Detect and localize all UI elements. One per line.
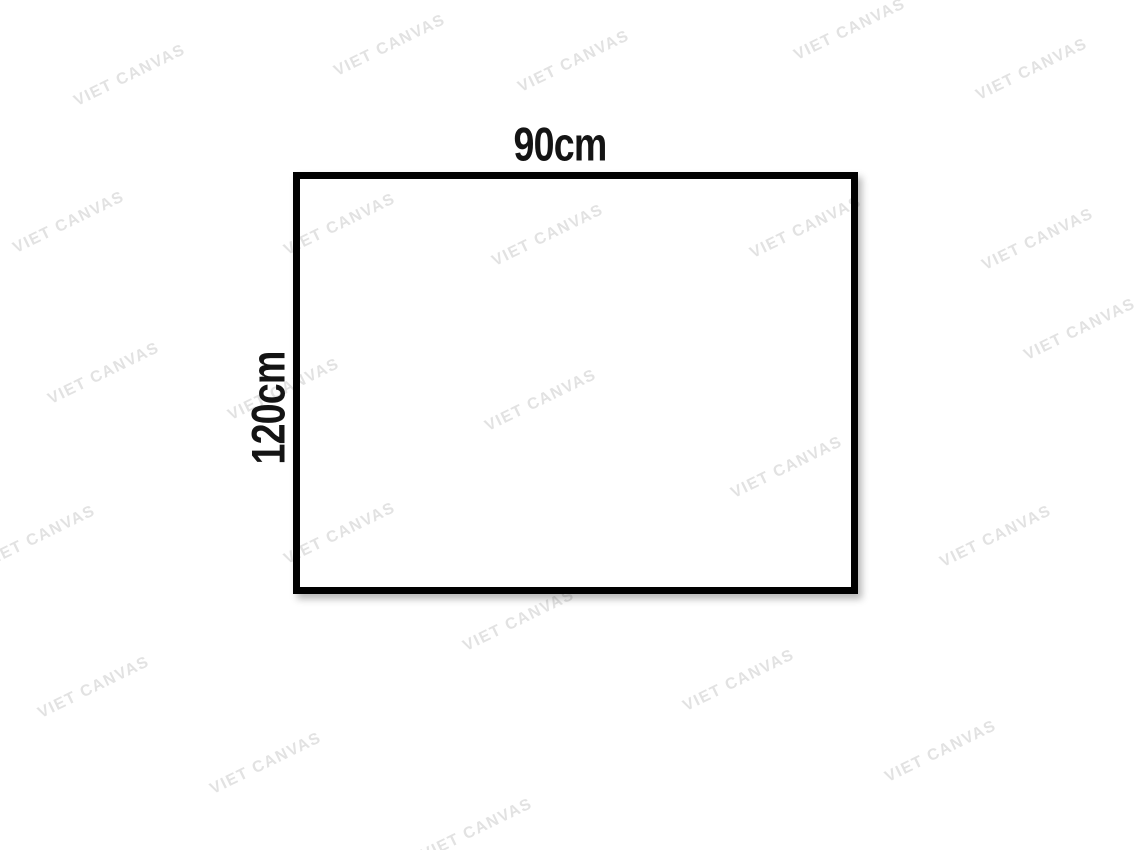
watermark-text: VIET CANVAS	[937, 502, 1054, 572]
watermark-text: VIET CANVAS	[882, 717, 999, 787]
watermark-text: VIET CANVAS	[45, 339, 162, 409]
watermark-text: VIET CANVAS	[791, 0, 908, 65]
product-mockup-page: VIET CANVASVIET CANVASVIET CANVASVIET CA…	[0, 0, 1134, 850]
watermark-text: VIET CANVAS	[71, 41, 188, 111]
height-dimension-label: 120cm	[245, 351, 292, 464]
watermark-text: VIET CANVAS	[331, 11, 448, 81]
watermark-text: VIET CANVAS	[515, 27, 632, 97]
watermark-text: VIET CANVAS	[973, 35, 1090, 105]
watermark-text: VIET CANVAS	[680, 646, 797, 716]
canvas-outline	[293, 172, 858, 594]
watermark-text: VIET CANVAS	[979, 205, 1096, 275]
width-dimension-label: 90cm	[514, 121, 607, 168]
watermark-text: VIET CANVAS	[418, 795, 535, 850]
watermark-text: VIET CANVAS	[460, 586, 577, 656]
watermark-text: VIET CANVAS	[0, 502, 99, 572]
watermark-text: VIET CANVAS	[35, 653, 152, 723]
watermark-text: VIET CANVAS	[207, 729, 324, 799]
watermark-text: VIET CANVAS	[10, 188, 127, 258]
watermark-text: VIET CANVAS	[1021, 295, 1134, 365]
